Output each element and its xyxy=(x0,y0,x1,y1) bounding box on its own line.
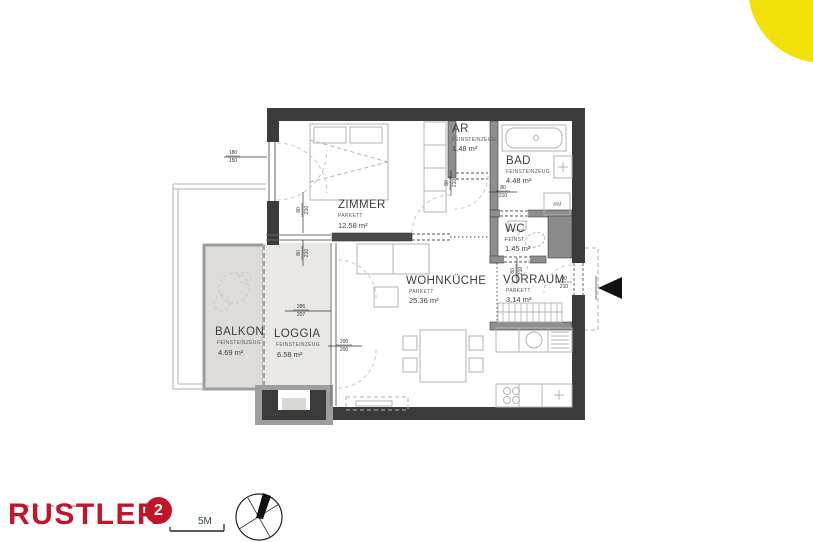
wc-name: WC xyxy=(505,223,525,235)
room-label-wohnkueche: WOHNKÜCHE PARKETT 25.36 m² xyxy=(406,275,486,305)
entrance-arrow xyxy=(596,276,622,300)
vorraum-floor: PARKETT xyxy=(506,288,531,294)
vorraum-name: VORRAUM xyxy=(503,274,565,286)
svg-text:80: 80 xyxy=(500,185,506,191)
wohnkueche-name: WOHNKÜCHE xyxy=(406,275,486,287)
loggia-name: LOGGIA xyxy=(274,328,321,340)
svg-text:210: 210 xyxy=(304,249,310,258)
ar-area: 1.48 m² xyxy=(452,144,478,153)
vorraum-area: 3.14 m² xyxy=(506,295,532,304)
svg-text:80: 80 xyxy=(510,268,516,274)
svg-text:210: 210 xyxy=(452,179,458,188)
scale-label: 5M xyxy=(198,516,212,527)
coat-rack xyxy=(498,303,562,322)
compass-north-icon xyxy=(236,493,282,540)
svg-text:80: 80 xyxy=(444,180,450,186)
wohnkueche-floor: PARKETT xyxy=(409,289,434,295)
svg-text:286: 286 xyxy=(297,304,306,310)
room-label-vorraum: VORRAUM PARKETT 3.14 m² xyxy=(503,274,565,304)
bed xyxy=(310,124,388,200)
wc-area: 1.45 m² xyxy=(505,244,531,253)
svg-text:80: 80 xyxy=(296,207,302,213)
loggia-floor: FEINSTEINZEUG xyxy=(276,342,320,348)
svg-text:180: 180 xyxy=(229,150,238,156)
bathtub xyxy=(502,125,566,151)
balkon-name: BALKON xyxy=(215,326,264,338)
room-label-ar: AR FEINSTEINZEUG 1.48 m² xyxy=(452,123,496,153)
ar-floor: FEINSTEINZEUG xyxy=(452,137,496,143)
rustler-logo-badge: 2 xyxy=(145,497,172,524)
balkon-floor: FEINSTEINZEUG xyxy=(217,340,261,346)
svg-text:80: 80 xyxy=(296,250,302,256)
svg-text:150: 150 xyxy=(229,158,238,164)
svg-text:200: 200 xyxy=(340,339,349,345)
zimmer-name: ZIMMER xyxy=(338,199,386,211)
washing-machine-label: WM xyxy=(553,202,562,208)
kitchen-counter-upper xyxy=(496,328,572,352)
wohnkueche-area: 25.36 m² xyxy=(409,296,439,305)
bad-area: 4.48 m² xyxy=(506,176,532,185)
rustler-logo-text: RUSTLER xyxy=(8,498,160,531)
svg-text:207: 207 xyxy=(297,312,306,318)
balkon-area: 4.69 m² xyxy=(218,348,244,357)
bathroom-sink xyxy=(554,156,572,178)
floorplan-page: WM 180 150 xyxy=(0,0,813,542)
kitchen-counter-lower xyxy=(496,384,572,407)
rustler-logo: RUSTLER 2 xyxy=(8,498,188,538)
floor-plan-svg: WM 180 150 xyxy=(0,0,813,542)
svg-text:210: 210 xyxy=(499,193,508,199)
svg-text:200: 200 xyxy=(340,347,349,353)
svg-text:210: 210 xyxy=(304,206,310,215)
balcony-floor xyxy=(204,245,264,389)
wc-floor: FEINST. xyxy=(505,237,526,243)
dining-table xyxy=(403,330,483,382)
zimmer-floor: PARKETT xyxy=(338,213,363,219)
room-label-bad: BAD FEINSTEINZEUG 4.48 m² xyxy=(506,155,550,185)
bad-name: BAD xyxy=(506,155,531,167)
ar-name: AR xyxy=(452,123,469,135)
zimmer-window xyxy=(269,142,275,201)
zimmer-area: 12.58 m² xyxy=(338,221,368,230)
loggia-area: 6.58 m² xyxy=(277,350,303,359)
room-label-zimmer: ZIMMER PARKETT 12.58 m² xyxy=(338,199,386,230)
bad-floor: FEINSTEINZEUG xyxy=(506,169,550,175)
